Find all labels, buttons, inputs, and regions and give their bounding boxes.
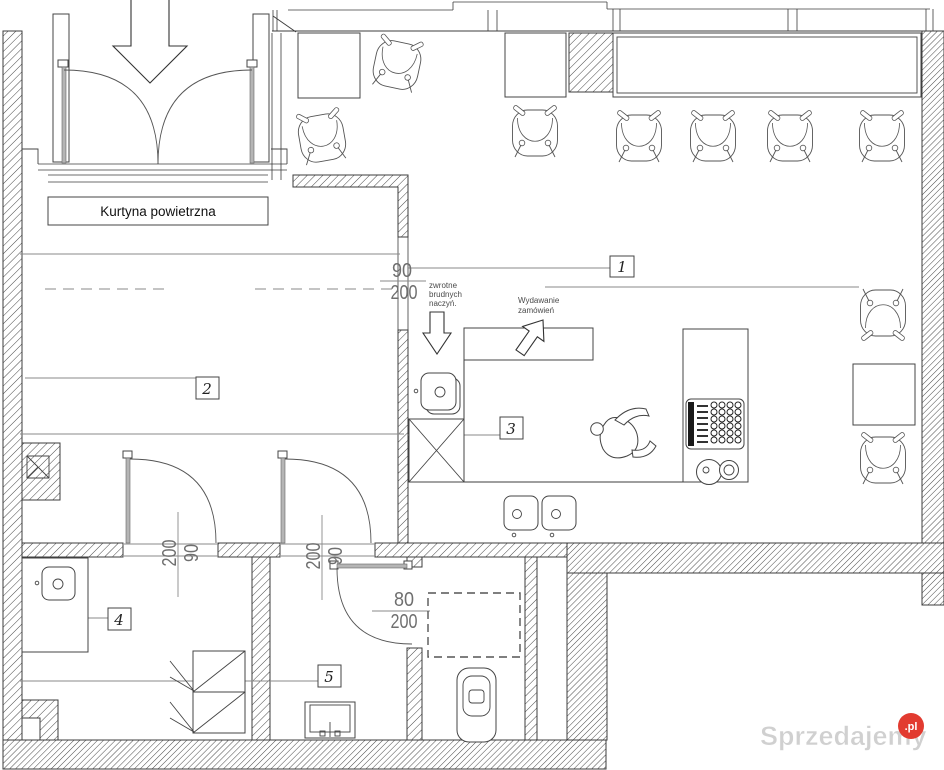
stair-wall (567, 573, 607, 740)
wc-right-wall (525, 557, 537, 740)
corridor-wall-seg (218, 543, 280, 557)
entrance-door-leaf-right (250, 67, 254, 163)
espresso-machine (686, 399, 744, 449)
floor-plan-drawing: Kurtyna powietrzna (0, 0, 944, 770)
note-line: zwrotne (429, 281, 458, 290)
dim-height: 200 (391, 611, 418, 633)
room-label-5: 5 (318, 665, 341, 687)
duct-block (22, 443, 60, 500)
armchair (513, 105, 558, 157)
room-label-3: 3 (500, 417, 523, 439)
dim-width: 90 (325, 547, 347, 565)
room-label-1: 1 (610, 256, 634, 277)
dim-width: 80 (394, 589, 414, 611)
person-head (591, 423, 604, 436)
floor-plan: Kurtyna powietrzna (0, 0, 944, 770)
door-leaf (126, 458, 130, 543)
room-number: 3 (506, 420, 516, 438)
note-line: Wydawanie (518, 296, 560, 305)
air-curtain-text: Kurtyna powietrzna (100, 204, 216, 219)
room-number: 4 (113, 611, 124, 629)
machine-side (688, 402, 694, 446)
room-number: 5 (324, 668, 334, 686)
note-line: zamówień (518, 306, 554, 315)
room-label-4: 4 (108, 608, 131, 630)
bottom-wall (3, 740, 606, 769)
door-cap (278, 451, 287, 458)
sink-bowl (42, 567, 75, 600)
kitchen-wall (398, 330, 408, 543)
grinder-hopper (720, 461, 739, 480)
entrance-door-leaf-left (62, 67, 66, 163)
south-wall (567, 543, 944, 573)
room-number: 2 (201, 380, 212, 398)
air-curtain-label: Kurtyna powietrzna (48, 197, 268, 225)
dishwasher (409, 419, 464, 482)
room4-room5-wall (252, 557, 270, 740)
dim-width: 90 (181, 544, 203, 562)
door-cap (123, 451, 132, 458)
right-wall (922, 31, 944, 543)
entrance-pillar-right (253, 14, 269, 162)
column (569, 33, 614, 92)
door-leaf (281, 458, 285, 543)
armchair (691, 110, 736, 162)
dim-height: 200 (159, 540, 181, 567)
dim-width: 90 (392, 260, 412, 282)
armchair (861, 432, 906, 484)
table (298, 33, 360, 98)
door-cap-right (247, 60, 257, 67)
corridor-wall-seg (375, 543, 567, 557)
door-cap-left (58, 60, 68, 67)
washbasin (305, 702, 355, 738)
left-wall (3, 31, 22, 740)
corridor-wall-seg (22, 543, 123, 557)
wc-left-wall (407, 648, 422, 740)
right-wall-foot (922, 573, 944, 605)
note-line: brudnych (429, 290, 462, 299)
door-leaf (337, 564, 407, 568)
bench-table (613, 33, 921, 97)
armchair (860, 110, 905, 162)
table (853, 364, 915, 425)
dim-height: 200 (303, 543, 325, 570)
dim-height: 200 (391, 282, 418, 304)
sink-bowl (421, 373, 456, 410)
armchair (861, 289, 906, 341)
armchair (617, 110, 662, 162)
machine-vents (697, 406, 708, 442)
room-number: 1 (617, 258, 627, 276)
grinder-base (697, 460, 722, 485)
sink-bowl (542, 496, 576, 530)
toilet (457, 668, 496, 742)
armchair (768, 110, 813, 162)
bench-outer (613, 33, 921, 97)
note-line: naczyń. (429, 299, 457, 308)
table (505, 33, 566, 97)
watermark-tld: .pl (905, 721, 918, 733)
entrance-pillar-left (53, 14, 69, 162)
room-label-2: 2 (196, 377, 219, 399)
